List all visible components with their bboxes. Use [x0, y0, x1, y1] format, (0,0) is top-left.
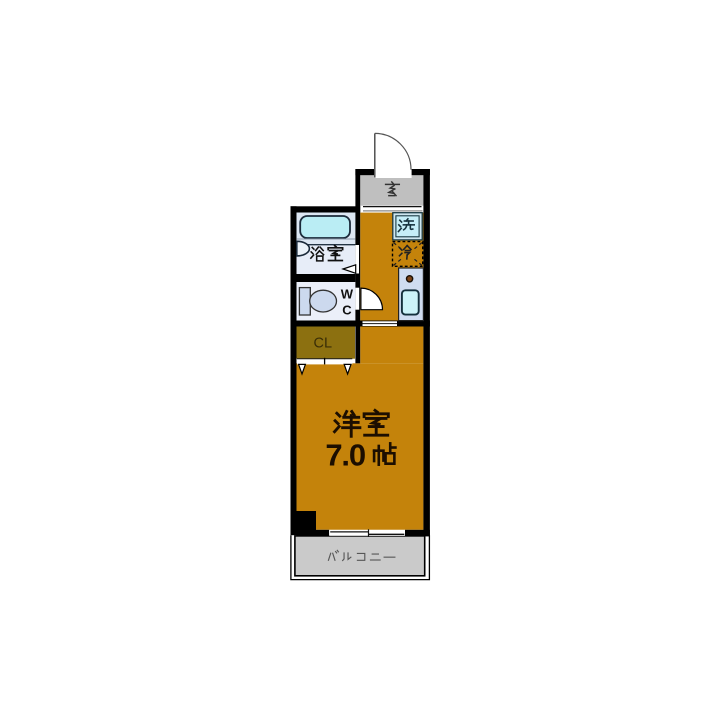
- svg-text:7.0: 7.0: [325, 437, 365, 472]
- svg-text:W: W: [341, 287, 354, 302]
- svg-text:C: C: [342, 303, 352, 318]
- svg-text:CL: CL: [314, 336, 333, 352]
